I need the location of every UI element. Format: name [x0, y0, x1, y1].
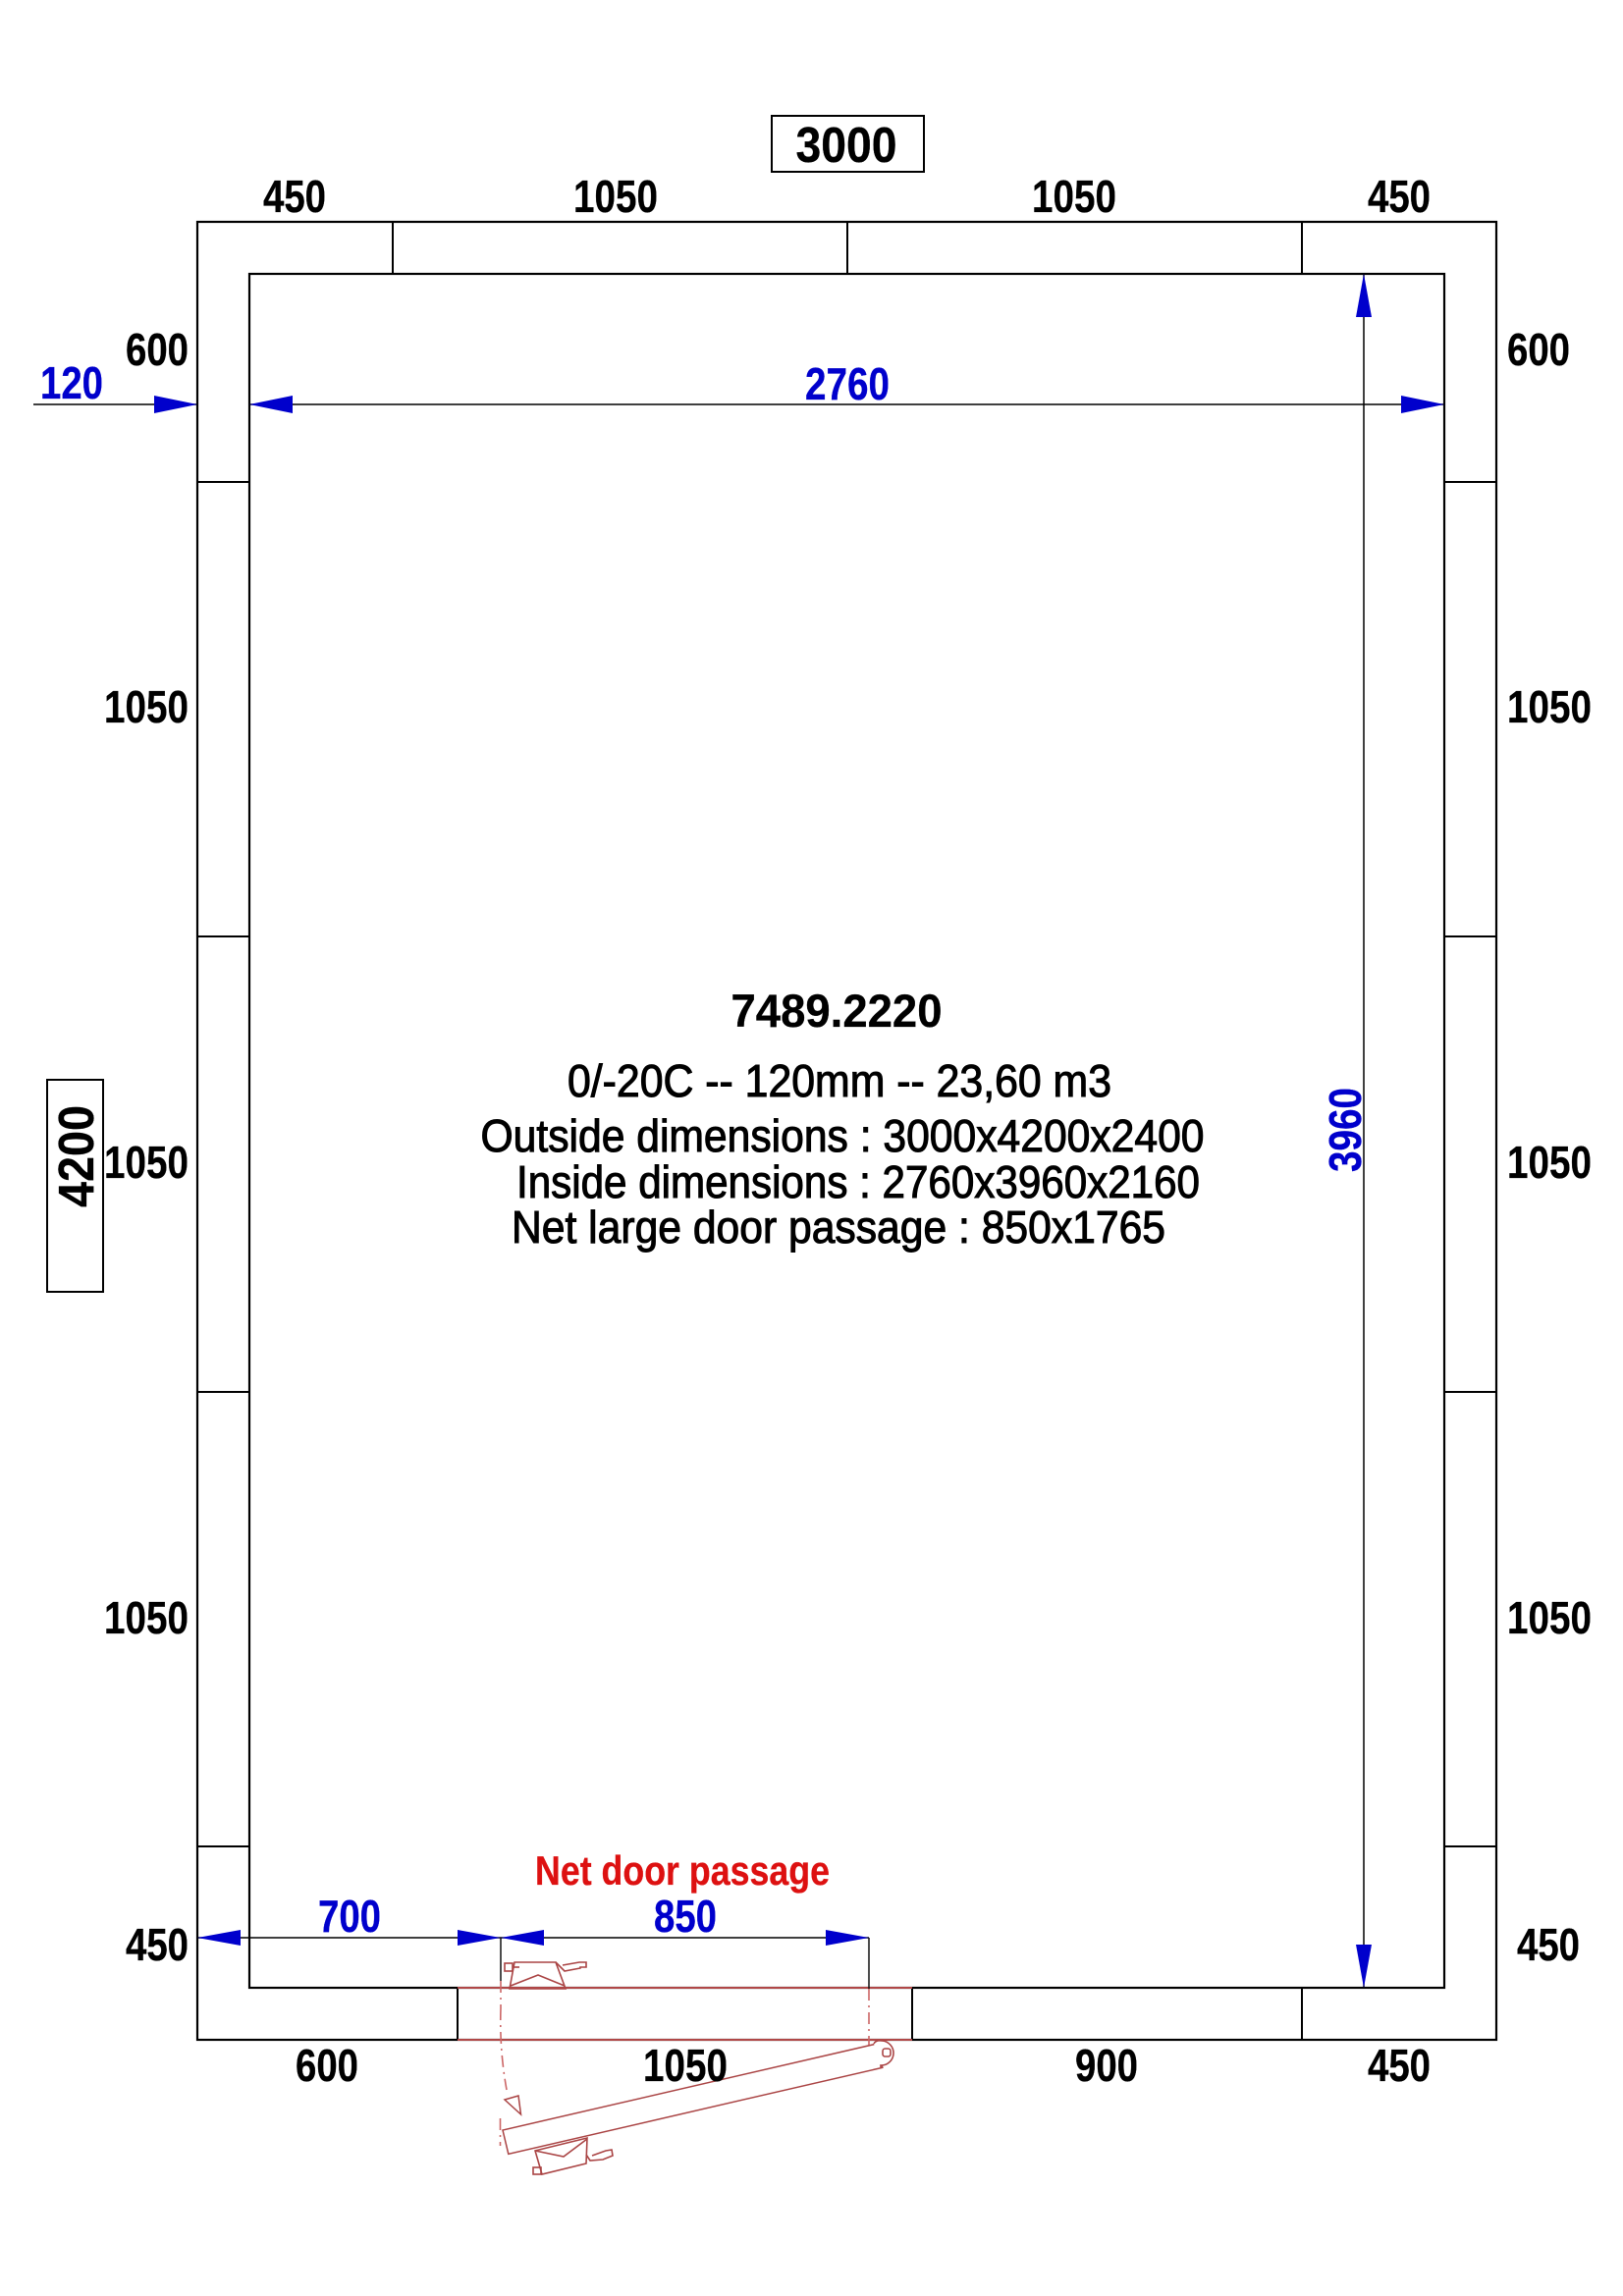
svg-text:2760: 2760	[805, 358, 890, 409]
svg-text:450: 450	[1368, 2040, 1431, 2091]
svg-text:120: 120	[40, 357, 103, 408]
svg-text:Net door passage: Net door passage	[535, 1847, 830, 1894]
svg-text:1050: 1050	[104, 1592, 189, 1643]
svg-text:450: 450	[263, 171, 326, 222]
svg-text:1050: 1050	[1507, 1137, 1592, 1188]
svg-text:3000: 3000	[796, 117, 897, 173]
svg-text:Outside dimensions : 3000x4200: Outside dimensions : 3000x4200x2400	[481, 1110, 1205, 1161]
svg-text:1050: 1050	[104, 681, 189, 732]
svg-text:600: 600	[126, 324, 189, 375]
svg-text:700: 700	[318, 1891, 381, 1942]
svg-text:7489.2220: 7489.2220	[731, 985, 943, 1037]
svg-text:1050: 1050	[1032, 171, 1116, 222]
svg-text:450: 450	[1368, 171, 1431, 222]
svg-text:600: 600	[1507, 324, 1570, 375]
svg-text:Net large door passage : 850x1: Net large door passage : 850x1765	[512, 1201, 1165, 1253]
svg-text:4200: 4200	[48, 1105, 104, 1207]
svg-text:Inside dimensions : 2760x3960x: Inside dimensions : 2760x3960x2160	[516, 1156, 1200, 1207]
svg-text:1050: 1050	[1507, 681, 1592, 732]
svg-text:0/-20C -- 120mm -- 23,60 m3: 0/-20C -- 120mm -- 23,60 m3	[568, 1055, 1111, 1106]
svg-text:450: 450	[1517, 1919, 1580, 1970]
svg-text:3960: 3960	[1320, 1088, 1371, 1172]
svg-text:1050: 1050	[573, 171, 658, 222]
svg-text:1050: 1050	[643, 2040, 728, 2091]
svg-text:1050: 1050	[104, 1137, 189, 1188]
svg-text:900: 900	[1075, 2040, 1138, 2091]
svg-text:850: 850	[654, 1891, 717, 1942]
svg-text:1050: 1050	[1507, 1592, 1592, 1643]
svg-text:450: 450	[126, 1919, 189, 1970]
svg-text:600: 600	[296, 2040, 358, 2091]
